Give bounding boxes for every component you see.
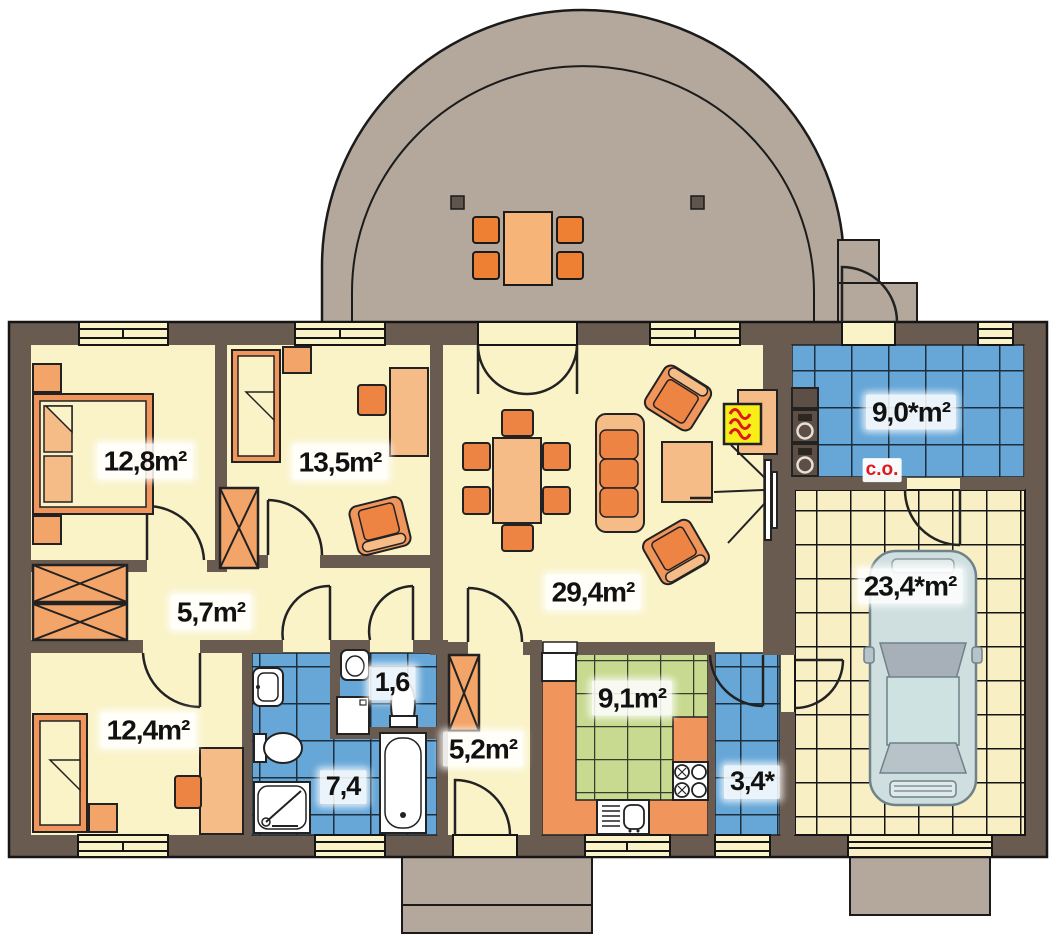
wc-washbasin (341, 650, 369, 680)
window (978, 322, 1013, 345)
terrace-french-door-opening (478, 322, 577, 345)
coffee-table (662, 442, 712, 502)
toilet (254, 733, 302, 763)
floor-plan-canvas: 12,8m² 13,5m² 5,7m² 12,4m² 1,6 7,4 5,2m²… (0, 0, 1057, 937)
area-label-bedroom-3: 12,4m² (101, 713, 196, 748)
boiler-unit (792, 410, 818, 442)
fridge (542, 653, 576, 681)
car-roof (887, 677, 959, 745)
nightstand (33, 516, 61, 544)
boiler-unit (792, 444, 818, 476)
area-label-boiler-room: 9,0*m² (866, 395, 956, 430)
wall (960, 477, 1025, 490)
wardrobe (33, 604, 127, 640)
wall (708, 653, 715, 835)
wall (530, 640, 542, 835)
car-mirror (972, 647, 982, 663)
terrace-chair (557, 217, 583, 243)
washbasin-tap (256, 685, 260, 689)
area-label-living-room: 29,4m² (546, 575, 641, 610)
terrace-chair (473, 217, 499, 243)
wardrobe (449, 655, 479, 731)
wall (320, 555, 443, 568)
front-porch (402, 857, 592, 906)
wall (31, 640, 143, 653)
wall (577, 642, 715, 655)
terrace-post-left (451, 196, 464, 209)
window (585, 835, 670, 857)
central-heating-label: c.o. (863, 458, 902, 482)
tv-screen (765, 460, 771, 540)
car-windshield (880, 643, 966, 679)
area-label-hall: 5,7m² (171, 595, 251, 630)
window (78, 835, 168, 857)
area-label-kitchen: 9,1m² (592, 681, 672, 716)
side-porch (838, 283, 917, 323)
window (295, 322, 385, 345)
utility-floor (715, 653, 780, 835)
boiler-equipment (792, 388, 818, 476)
desk-chair (358, 385, 386, 415)
front-door-opening (453, 835, 517, 857)
kitchen-sink (597, 800, 649, 834)
terrace-table (504, 212, 552, 285)
boiler-cabinet (792, 388, 818, 408)
dining-chair (502, 410, 533, 436)
wall (787, 490, 795, 655)
washbasin-bowl (258, 673, 278, 701)
sofa (596, 414, 644, 532)
side-entrance-opening (842, 322, 895, 345)
area-label-corridor: 5,2m² (443, 732, 523, 767)
desk (390, 368, 428, 456)
car-mirror (864, 647, 874, 663)
front-porch-step (402, 905, 592, 933)
bathtub (380, 733, 426, 833)
garage-apron (850, 857, 990, 915)
area-label-garage: 23,4*m² (858, 569, 963, 604)
window (79, 322, 168, 345)
dining-chair (502, 525, 533, 551)
window (650, 322, 740, 345)
shower (254, 782, 310, 833)
dining-table (493, 438, 541, 523)
dining-chair (543, 487, 570, 514)
bedside-table (283, 347, 311, 373)
pillow (44, 456, 72, 502)
terrace-post-right (691, 196, 704, 209)
wall (780, 712, 795, 835)
wardrobe (33, 565, 127, 602)
dining-chair (463, 487, 490, 514)
stove (673, 762, 708, 800)
dining-chair (543, 443, 570, 470)
tv-mount (772, 472, 777, 528)
area-label-bathroom: 7,4 (320, 770, 367, 804)
wall (430, 345, 443, 655)
car-trunk (890, 781, 956, 797)
washing-machine (337, 697, 369, 734)
wall (200, 640, 283, 653)
terrace (322, 10, 844, 323)
terrace-chair (473, 252, 499, 279)
nightstand (89, 804, 117, 832)
wardrobe (220, 488, 258, 568)
area-label-bedroom-2: 13,5m² (293, 445, 388, 480)
dining-chair (463, 443, 490, 470)
area-label-bedroom-main: 12,8m² (98, 444, 193, 479)
garage-gate-opening (848, 835, 992, 857)
terrace-chair (557, 252, 583, 279)
nightstand (33, 364, 61, 392)
area-label-utility: 3,4* (724, 765, 780, 799)
area-label-wc: 1,6 (369, 666, 416, 700)
desk-chair (175, 776, 201, 808)
desk (200, 748, 243, 834)
window (715, 835, 770, 857)
window (315, 835, 385, 857)
car-rear-window (880, 743, 966, 773)
